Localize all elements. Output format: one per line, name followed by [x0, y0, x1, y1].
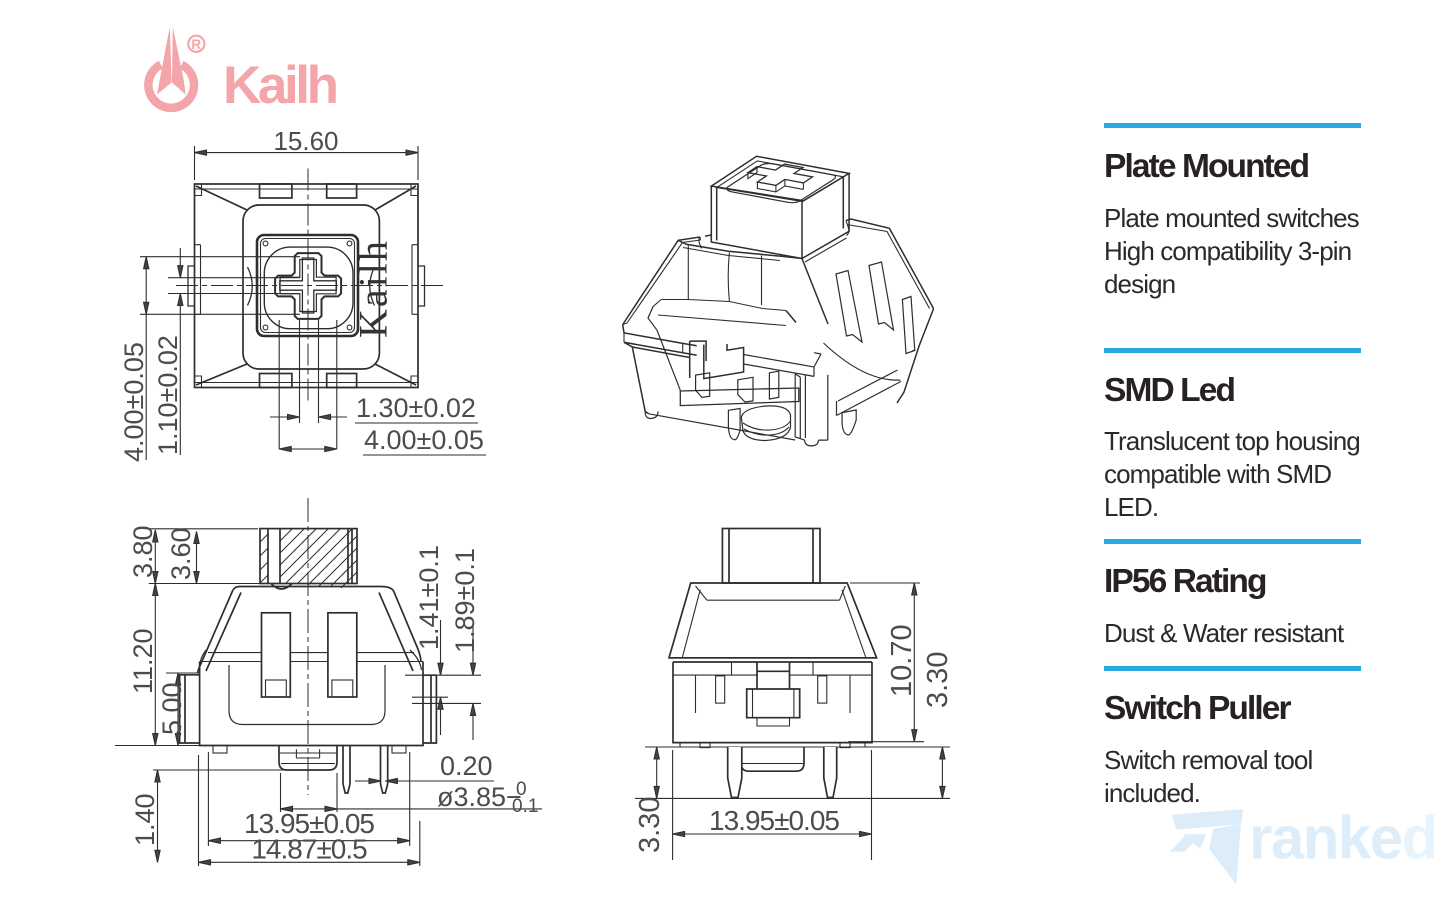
svg-text:5.00: 5.00: [157, 682, 187, 735]
svg-text:0.20: 0.20: [440, 751, 493, 781]
svg-text:ranked: ranked: [1249, 804, 1437, 871]
svg-text:1.41±0.1: 1.41±0.1: [414, 545, 444, 650]
svg-text:1.89±0.1: 1.89±0.1: [450, 548, 480, 653]
svg-text:3.60: 3.60: [166, 527, 196, 580]
svg-text:1.10±0.02: 1.10±0.02: [153, 335, 183, 455]
svg-text:4.00±0.05: 4.00±0.05: [364, 425, 484, 455]
svg-text:11.20: 11.20: [128, 628, 158, 694]
svg-text:1.40: 1.40: [130, 793, 160, 846]
svg-text:4.00±0.05: 4.00±0.05: [119, 342, 149, 462]
svg-text:13.95±0.05: 13.95±0.05: [709, 805, 839, 836]
svg-text:0.1: 0.1: [512, 796, 538, 817]
svg-text:ø3.85−: ø3.85−: [437, 782, 522, 812]
svg-text:14.87±0.5: 14.87±0.5: [251, 834, 367, 865]
svg-text:10.70: 10.70: [886, 624, 918, 697]
svg-text:15.60: 15.60: [273, 126, 338, 156]
svg-text:Kailh: Kailh: [351, 239, 396, 338]
svg-text:3.80: 3.80: [128, 525, 158, 578]
svg-text:3.30: 3.30: [634, 797, 666, 853]
svg-text:3.30: 3.30: [922, 652, 954, 708]
svg-text:1.30±0.02: 1.30±0.02: [356, 393, 476, 423]
